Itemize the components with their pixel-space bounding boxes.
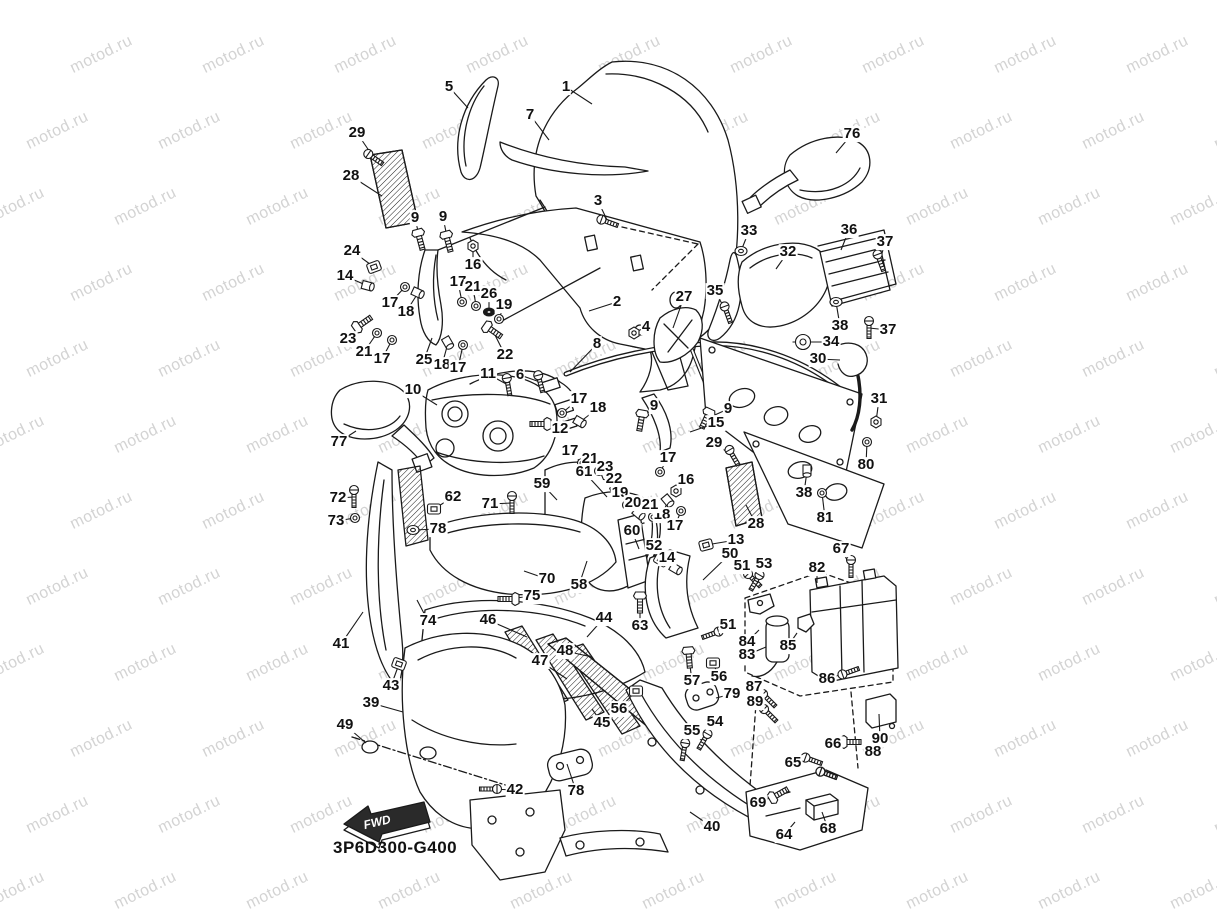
- part-label-27: 27: [675, 289, 694, 305]
- part-label-68: 68: [819, 821, 838, 837]
- diagram-code: 3P6D300-G400: [333, 838, 457, 858]
- part-label-88: 88: [864, 744, 883, 760]
- part-label-6: 6: [515, 367, 525, 383]
- part-label-65: 65: [784, 755, 803, 771]
- part-label-76: 76: [843, 126, 862, 142]
- part-label-12: 12: [551, 421, 570, 437]
- part-label-21: 21: [355, 344, 374, 360]
- part-label-72: 72: [329, 490, 348, 506]
- part-label-30: 30: [809, 351, 828, 367]
- part-label-83: 83: [738, 647, 757, 663]
- part-label-8: 8: [592, 336, 602, 352]
- part-label-31: 31: [870, 391, 889, 407]
- part-label-32: 32: [779, 244, 798, 260]
- part-label-37: 37: [879, 322, 898, 338]
- part-label-17: 17: [373, 351, 392, 367]
- part-label-22: 22: [496, 347, 515, 363]
- part-label-34: 34: [822, 334, 841, 350]
- part-label-11: 11: [479, 366, 497, 382]
- part-label-17: 17: [659, 450, 678, 466]
- part-label-86: 86: [818, 671, 837, 687]
- part-label-1: 1: [561, 79, 571, 95]
- part-label-73: 73: [327, 513, 346, 529]
- part-label-79: 79: [723, 686, 742, 702]
- part-label-17: 17: [666, 518, 685, 534]
- part-label-9: 9: [410, 210, 420, 226]
- part-label-28: 28: [747, 516, 766, 532]
- part-label-15: 15: [707, 415, 726, 431]
- part-label-5: 5: [444, 79, 454, 95]
- part-label-77: 77: [330, 434, 349, 450]
- part-label-16: 16: [464, 257, 483, 273]
- part-label-85: 85: [779, 638, 798, 654]
- part-label-19: 19: [495, 297, 514, 313]
- part-label-18: 18: [397, 304, 416, 320]
- part-label-62: 62: [444, 489, 463, 505]
- part-label-56: 56: [710, 669, 729, 685]
- part-label-89: 89: [746, 694, 765, 710]
- part-label-39: 39: [362, 695, 381, 711]
- part-label-44: 44: [595, 610, 614, 626]
- part-label-80: 80: [857, 457, 876, 473]
- part-label-29: 29: [348, 125, 367, 141]
- part-label-81: 81: [816, 510, 835, 526]
- part-label-18: 18: [589, 400, 608, 416]
- part-label-71: 71: [481, 496, 500, 512]
- part-label-9: 9: [649, 398, 659, 414]
- part-label-40: 40: [703, 819, 722, 835]
- part-label-10: 10: [404, 382, 423, 398]
- part-label-61: 61: [575, 464, 594, 480]
- part-label-45: 45: [593, 715, 612, 731]
- part-label-33: 33: [740, 223, 759, 239]
- part-label-53: 53: [755, 556, 774, 572]
- part-label-17: 17: [570, 391, 589, 407]
- part-label-56: 56: [610, 701, 629, 717]
- part-label-9: 9: [438, 209, 448, 225]
- part-label-3: 3: [593, 193, 603, 209]
- part-label-74: 74: [419, 613, 438, 629]
- part-label-82: 82: [808, 560, 827, 576]
- part-label-78: 78: [567, 783, 586, 799]
- part-label-51: 51: [719, 617, 738, 633]
- part-label-38: 38: [795, 485, 814, 501]
- part-label-51: 51: [733, 558, 752, 574]
- part-label-59: 59: [533, 476, 552, 492]
- part-label-58: 58: [570, 577, 589, 593]
- part-label-54: 54: [706, 714, 725, 730]
- part-label-24: 24: [343, 243, 362, 259]
- part-label-17: 17: [449, 360, 468, 376]
- part-label-2: 2: [612, 294, 622, 310]
- part-label-37: 37: [876, 234, 895, 250]
- part-label-38: 38: [831, 318, 850, 334]
- part-label-41: 41: [332, 636, 351, 652]
- part-label-49: 49: [336, 717, 355, 733]
- part-label-66: 66: [824, 736, 843, 752]
- part-label-25: 25: [415, 352, 434, 368]
- part-label-29: 29: [705, 435, 724, 451]
- part-label-16: 16: [677, 472, 696, 488]
- part-label-63: 63: [631, 618, 650, 634]
- part-label-48: 48: [556, 643, 575, 659]
- part-label-35: 35: [706, 283, 725, 299]
- part-label-70: 70: [538, 571, 557, 587]
- part-label-55: 55: [683, 723, 702, 739]
- part-label-64: 64: [775, 827, 794, 843]
- part-label-75: 75: [523, 588, 542, 604]
- part-label-42: 42: [506, 782, 525, 798]
- part-label-47: 47: [531, 653, 550, 669]
- part-label-60: 60: [623, 523, 642, 539]
- part-label-43: 43: [382, 678, 401, 694]
- part-label-21: 21: [641, 497, 660, 513]
- part-label-14: 14: [336, 268, 355, 284]
- part-label-7: 7: [525, 107, 535, 123]
- exploded-parts-diagram: motod.rumotod.rumotod.rumotod.rumotod.ru…: [0, 0, 1217, 913]
- part-label-69: 69: [749, 795, 768, 811]
- part-label-46: 46: [479, 612, 498, 628]
- part-label-57: 57: [683, 673, 702, 689]
- part-label-67: 67: [832, 541, 851, 557]
- part-label-36: 36: [840, 222, 859, 238]
- part-label-14: 14: [658, 550, 677, 566]
- part-label-17: 17: [561, 443, 580, 459]
- part-label-20: 20: [624, 495, 643, 511]
- part-label-78: 78: [429, 521, 448, 537]
- part-label-4: 4: [641, 319, 651, 335]
- part-number-labels: 1572928399162414171823211725181722172126…: [0, 0, 1217, 913]
- part-label-28: 28: [342, 168, 361, 184]
